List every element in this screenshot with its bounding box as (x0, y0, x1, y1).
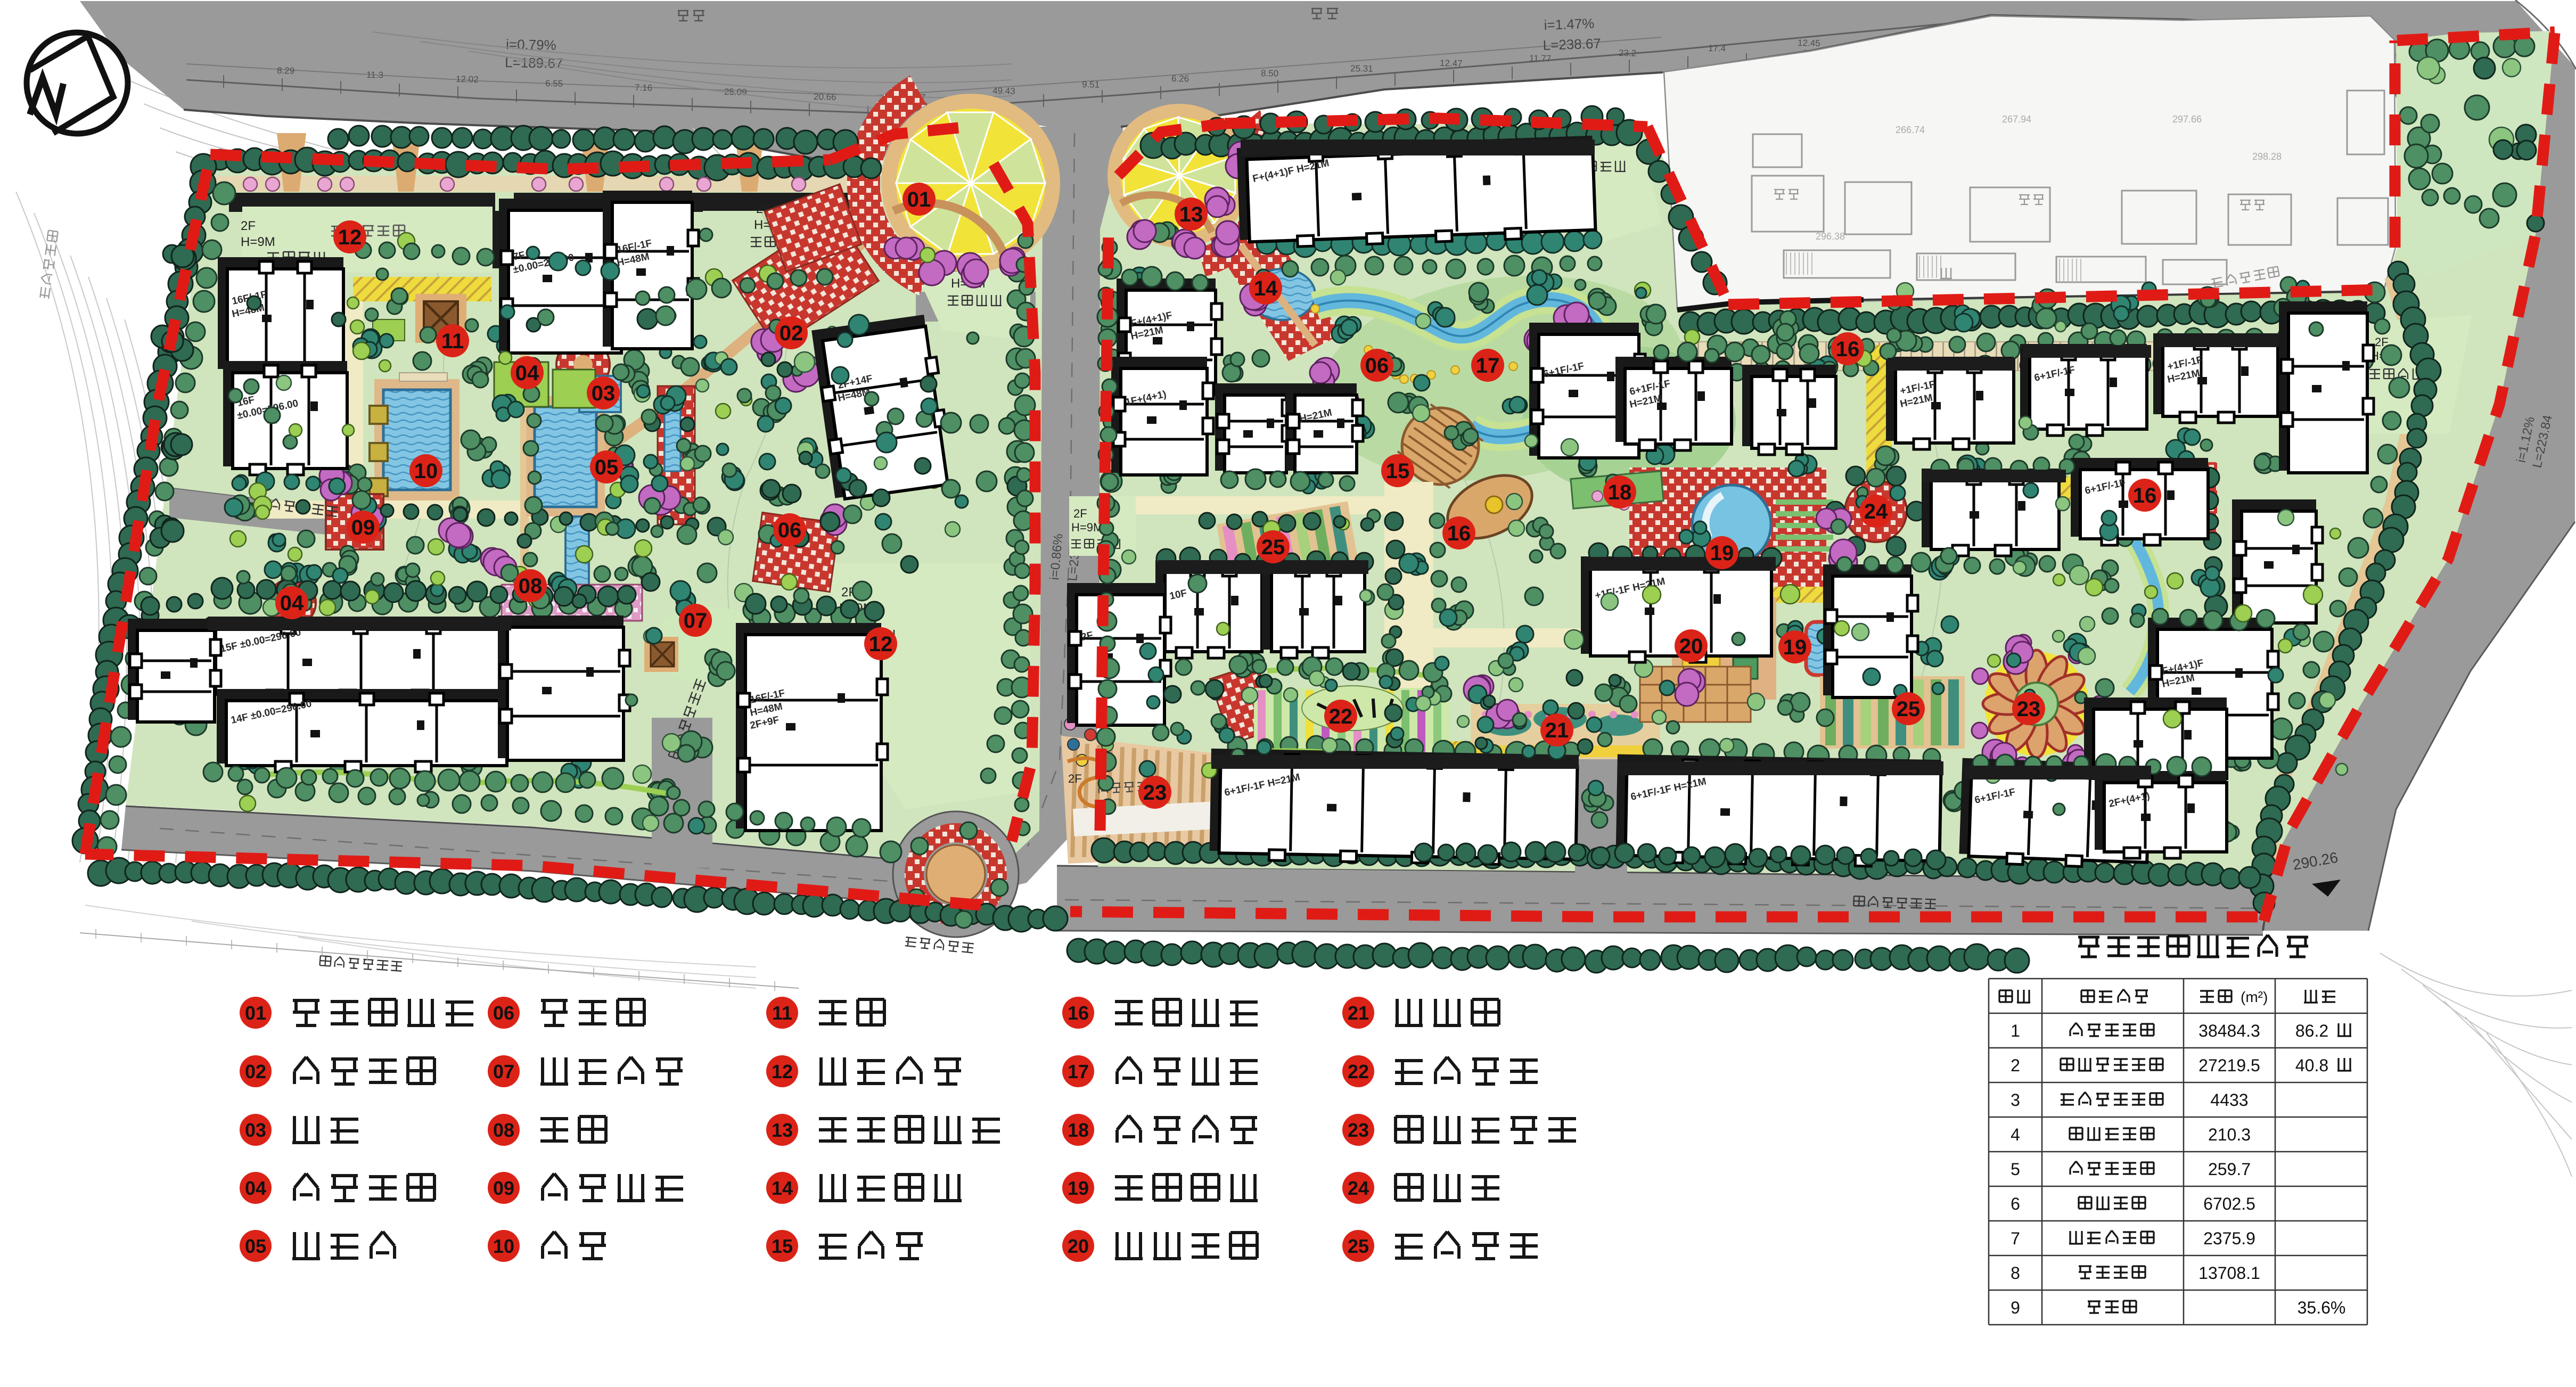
svg-text:L=238.67: L=238.67 (1543, 35, 1601, 53)
svg-text:7.16: 7.16 (635, 83, 652, 93)
svg-text:6.55: 6.55 (545, 78, 563, 89)
svg-text:9: 9 (2011, 1298, 2020, 1317)
svg-text:07: 07 (684, 609, 708, 633)
svg-text:210.3: 210.3 (2208, 1125, 2251, 1144)
svg-text:14: 14 (772, 1177, 793, 1199)
svg-text:12.02: 12.02 (456, 74, 479, 85)
svg-text:12: 12 (869, 633, 893, 656)
svg-text:8: 8 (2011, 1263, 2020, 1283)
svg-text:13: 13 (1179, 203, 1203, 226)
svg-text:09: 09 (493, 1177, 514, 1199)
svg-text:08: 08 (519, 575, 543, 598)
svg-text:15: 15 (1386, 459, 1410, 483)
svg-text:267.94: 267.94 (2002, 114, 2031, 125)
svg-text:15: 15 (772, 1235, 793, 1257)
svg-text:3: 3 (2011, 1090, 2020, 1110)
svg-text:10: 10 (493, 1235, 514, 1257)
svg-text:20: 20 (1679, 635, 1703, 658)
svg-text:2F: 2F (241, 219, 256, 233)
svg-text:19: 19 (1783, 636, 1807, 659)
svg-text:23: 23 (1143, 781, 1167, 805)
svg-text:11: 11 (441, 330, 464, 353)
svg-text:25.31: 25.31 (1350, 63, 1373, 74)
svg-text:i=1.47%: i=1.47% (1544, 15, 1595, 33)
svg-text:12: 12 (772, 1061, 793, 1082)
svg-text:40.8: 40.8 (2295, 1056, 2328, 1075)
svg-text:25: 25 (1897, 697, 1921, 721)
svg-text:04: 04 (515, 362, 539, 385)
svg-text:13708.1: 13708.1 (2198, 1263, 2260, 1283)
svg-text:4: 4 (2011, 1125, 2020, 1144)
svg-text:11.77: 11.77 (1529, 53, 1552, 64)
svg-text:259.7: 259.7 (2208, 1160, 2251, 1179)
svg-text:11.3: 11.3 (366, 70, 383, 80)
svg-text:296.38: 296.38 (1816, 231, 1845, 242)
svg-text:297.66: 297.66 (2172, 114, 2202, 125)
svg-text:38484.3: 38484.3 (2198, 1021, 2260, 1040)
svg-text:07: 07 (493, 1061, 514, 1082)
svg-text:06: 06 (1365, 354, 1389, 377)
svg-text:12.47: 12.47 (1440, 58, 1463, 69)
svg-text:H=9M: H=9M (1071, 521, 1103, 534)
svg-text:22: 22 (1348, 1061, 1369, 1082)
svg-text:25: 25 (1261, 536, 1285, 559)
svg-text:(m²): (m²) (2241, 989, 2268, 1005)
svg-text:05: 05 (245, 1235, 266, 1257)
svg-text:6702.5: 6702.5 (2203, 1194, 2255, 1213)
svg-text:5: 5 (2011, 1160, 2020, 1179)
svg-text:02: 02 (780, 322, 803, 345)
svg-text:16: 16 (1836, 338, 1860, 361)
svg-text:10: 10 (414, 459, 438, 483)
svg-text:6: 6 (2011, 1194, 2020, 1213)
svg-text:04: 04 (280, 592, 304, 615)
svg-text:05: 05 (595, 456, 619, 479)
svg-text:19: 19 (1068, 1177, 1089, 1199)
svg-text:86.2: 86.2 (2295, 1021, 2328, 1040)
svg-text:23: 23 (1348, 1119, 1369, 1141)
svg-text:22: 22 (1329, 705, 1353, 728)
svg-text:21: 21 (1348, 1002, 1369, 1024)
svg-text:12: 12 (338, 226, 362, 249)
svg-text:12.45: 12.45 (1798, 38, 1820, 48)
svg-text:13: 13 (772, 1119, 793, 1141)
svg-text:23: 23 (2017, 697, 2041, 721)
svg-text:49.43: 49.43 (992, 86, 1015, 96)
svg-text:4433: 4433 (2210, 1090, 2248, 1110)
svg-text:19: 19 (1710, 541, 1734, 565)
svg-text:11: 11 (772, 1002, 792, 1024)
svg-text:24: 24 (1348, 1177, 1369, 1199)
svg-text:20: 20 (1068, 1235, 1089, 1257)
svg-text:21: 21 (1545, 719, 1569, 742)
svg-text:6.26: 6.26 (1171, 73, 1189, 84)
svg-text:16: 16 (2133, 484, 2157, 507)
svg-text:7: 7 (2011, 1229, 2020, 1248)
svg-text:01: 01 (245, 1002, 266, 1024)
svg-text:17.4: 17.4 (1708, 43, 1726, 54)
svg-text:1: 1 (2011, 1021, 2020, 1040)
svg-text:08: 08 (493, 1119, 514, 1141)
svg-text:L=189.67: L=189.67 (505, 54, 563, 71)
svg-text:9.51: 9.51 (1082, 79, 1100, 90)
svg-text:266.74: 266.74 (1896, 125, 1925, 135)
svg-text:8.29: 8.29 (277, 65, 294, 76)
svg-text:i=0.79%: i=0.79% (506, 36, 556, 53)
svg-text:25: 25 (1348, 1235, 1369, 1257)
svg-text:09: 09 (351, 516, 375, 539)
svg-text:06: 06 (778, 519, 802, 542)
svg-text:18: 18 (1608, 481, 1632, 504)
svg-text:24: 24 (1864, 500, 1888, 523)
svg-text:H=9M: H=9M (241, 235, 275, 249)
svg-text:06: 06 (493, 1002, 514, 1024)
svg-text:02: 02 (245, 1061, 266, 1082)
svg-text:2F: 2F (1068, 772, 1082, 785)
svg-text:35.6%: 35.6% (2298, 1298, 2346, 1317)
svg-text:17: 17 (1476, 354, 1500, 377)
svg-text:2F: 2F (1073, 507, 1087, 520)
svg-text:03: 03 (245, 1119, 266, 1141)
svg-text:27219.5: 27219.5 (2198, 1056, 2260, 1075)
svg-text:17: 17 (1068, 1061, 1089, 1082)
svg-text:2: 2 (2011, 1056, 2020, 1075)
svg-text:8.50: 8.50 (1261, 68, 1278, 79)
svg-text:14: 14 (1254, 277, 1278, 300)
svg-text:16: 16 (1447, 522, 1471, 545)
svg-text:18: 18 (1068, 1119, 1089, 1141)
svg-text:2375.9: 2375.9 (2203, 1229, 2255, 1248)
svg-text:298.28: 298.28 (2252, 151, 2282, 162)
svg-text:01: 01 (907, 188, 931, 211)
svg-text:04: 04 (245, 1177, 266, 1199)
svg-text:23.2: 23.2 (1619, 48, 1636, 59)
svg-text:03: 03 (592, 382, 616, 405)
svg-text:16: 16 (1068, 1002, 1089, 1024)
